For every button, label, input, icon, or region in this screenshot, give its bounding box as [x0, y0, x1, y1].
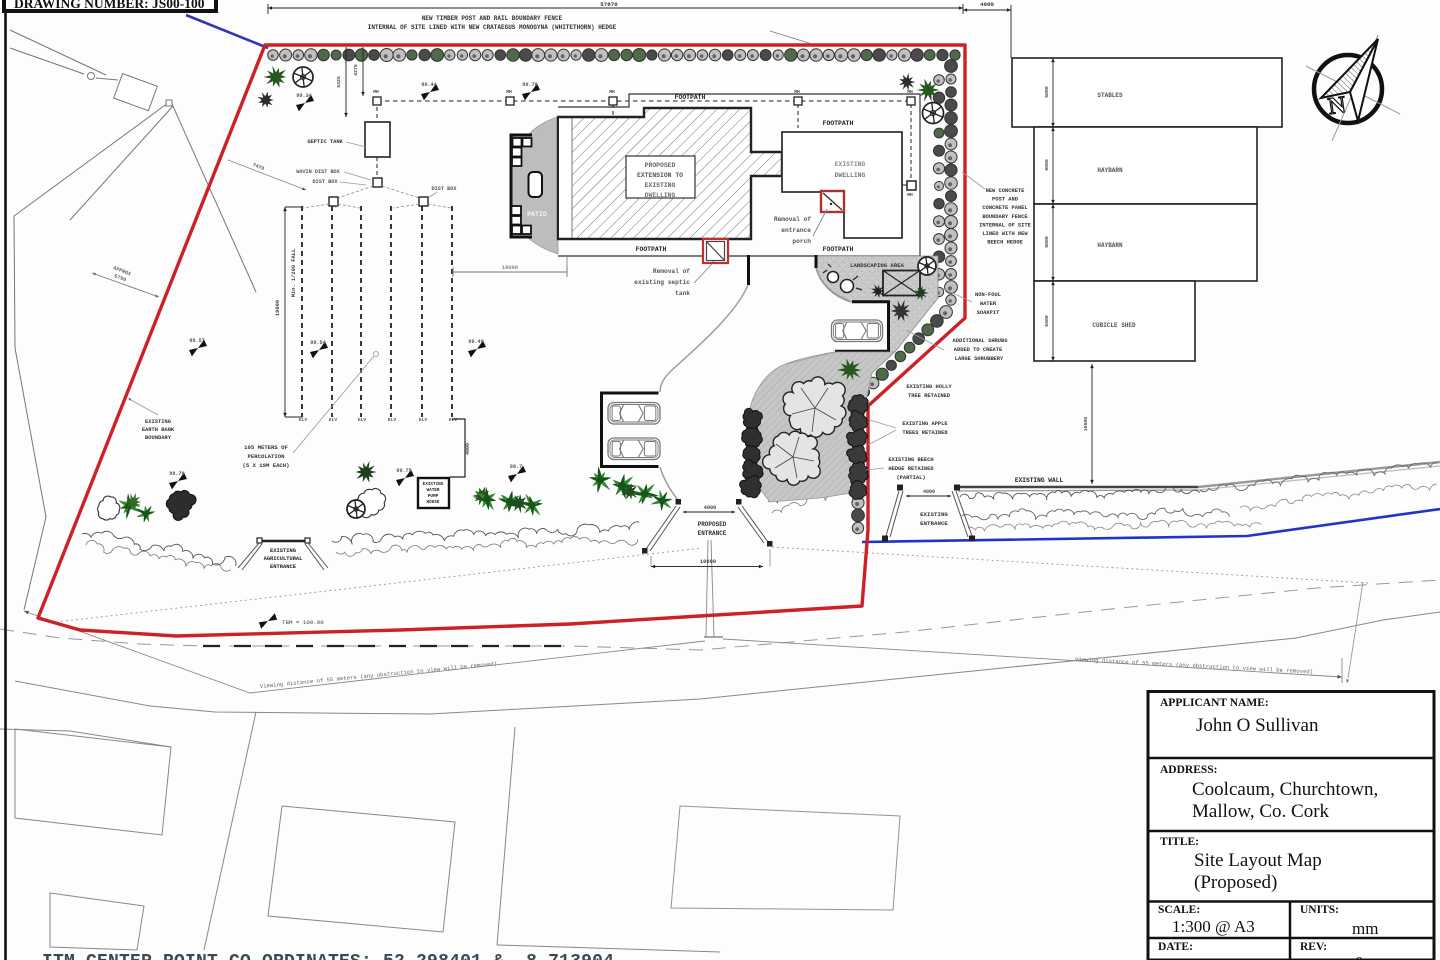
svg-text:EXISTING: EXISTING: [920, 511, 948, 518]
svg-text:99.78: 99.78: [169, 471, 185, 477]
svg-text:6500: 6500: [1044, 315, 1050, 327]
svg-text:PUMP: PUMP: [428, 494, 439, 499]
svg-text:LARGE SHRUBBERY: LARGE SHRUBBERY: [955, 356, 1004, 362]
svg-text:DWELLING: DWELLING: [835, 172, 866, 179]
svg-text:LANDSCAPING AREA: LANDSCAPING AREA: [850, 262, 904, 269]
svg-text:DWELLING: DWELLING: [645, 192, 676, 199]
svg-text:UNITS:: UNITS:: [1300, 904, 1339, 916]
svg-text:porch: porch: [792, 238, 811, 245]
svg-text:MH: MH: [907, 192, 913, 198]
svg-text:NEW CONCRETE: NEW CONCRETE: [986, 188, 1026, 194]
svg-text:STABLES: STABLES: [1097, 92, 1123, 99]
svg-text:mm: mm: [1352, 919, 1378, 938]
svg-text:EXISTING BEECH: EXISTING BEECH: [888, 457, 933, 463]
svg-text:HAYBARN: HAYBARN: [1097, 242, 1123, 249]
svg-text:APPLICANT NAME:: APPLICANT NAME:: [1160, 697, 1269, 709]
svg-text:PERCOLATION: PERCOLATION: [248, 453, 285, 460]
svg-text:DIST BOX: DIST BOX: [432, 186, 458, 192]
svg-text:DRAWING NUMBER: JS00-100: DRAWING NUMBER: JS00-100: [14, 0, 205, 11]
svg-text:PROPOSED: PROPOSED: [645, 162, 676, 169]
svg-text:0: 0: [1355, 953, 1364, 960]
svg-text:BEECH HEDGE: BEECH HEDGE: [987, 240, 1023, 246]
svg-text:POST AND: POST AND: [992, 197, 1019, 203]
svg-text:NON-FOUL: NON-FOUL: [975, 292, 1001, 298]
svg-text:HAYBARN: HAYBARN: [1097, 167, 1123, 174]
svg-text:WATER: WATER: [980, 301, 997, 307]
svg-text:AGRICULTURAL: AGRICULTURAL: [264, 556, 303, 562]
svg-text:existing septic: existing septic: [634, 279, 690, 286]
svg-text:EARTH BANK: EARTH BANK: [142, 427, 175, 433]
svg-text:HEDGE RETAINED: HEDGE RETAINED: [888, 466, 934, 472]
svg-text:(Proposed): (Proposed): [1194, 872, 1277, 893]
svg-text:99.75: 99.75: [396, 468, 412, 474]
svg-text:EXISTING: EXISTING: [835, 161, 866, 168]
svg-text:9000: 9000: [1044, 236, 1050, 248]
svg-text:ENTRANCE: ENTRANCE: [920, 520, 948, 527]
svg-text:ELV: ELV: [419, 417, 428, 423]
svg-text:tank: tank: [675, 290, 690, 297]
svg-text:MH: MH: [506, 89, 512, 95]
svg-text:99.78: 99.78: [522, 82, 538, 88]
svg-text:99.54: 99.54: [310, 340, 326, 346]
svg-text:(5 X 19M EACH): (5 X 19M EACH): [243, 462, 290, 469]
svg-text:Removal of: Removal of: [774, 216, 811, 223]
svg-text:ELV: ELV: [358, 417, 367, 423]
svg-text:99.34: 99.34: [296, 93, 312, 99]
svg-text:99.49: 99.49: [468, 339, 484, 345]
svg-text:ENTRANCE: ENTRANCE: [270, 564, 297, 570]
svg-text:PROPOSED: PROPOSED: [698, 521, 727, 528]
svg-text:ELV: ELV: [329, 417, 338, 423]
svg-text:5000: 5000: [1044, 86, 1050, 98]
svg-text:5325: 5325: [336, 76, 342, 88]
svg-text:99.57: 99.57: [189, 338, 205, 344]
svg-text:WAVIN DIST BOX: WAVIN DIST BOX: [296, 169, 340, 175]
svg-text:EXTENSION TO: EXTENSION TO: [637, 172, 683, 179]
svg-text:CONCRETE PANEL: CONCRETE PANEL: [982, 205, 1027, 211]
svg-text:10000: 10000: [502, 265, 518, 271]
svg-text:10000: 10000: [700, 559, 716, 565]
svg-text:4000: 4000: [980, 1, 994, 8]
svg-text:TREE RETAINED: TREE RETAINED: [908, 393, 951, 399]
svg-text:John O Sullivan: John O Sullivan: [1196, 715, 1319, 736]
svg-text:10500: 10500: [1083, 417, 1089, 432]
svg-text:MH: MH: [373, 89, 379, 95]
svg-text:4000: 4000: [923, 489, 935, 495]
svg-text:EXISTING HOLLY: EXISTING HOLLY: [906, 384, 952, 390]
svg-text:Mallow, Co. Cork: Mallow, Co. Cork: [1192, 801, 1330, 822]
svg-text:FOOTPATH: FOOTPATH: [823, 120, 854, 127]
svg-text:SEPTIC TANK: SEPTIC TANK: [307, 139, 343, 145]
svg-text:ADDRESS:: ADDRESS:: [1160, 764, 1218, 776]
svg-text:FOOTPATH: FOOTPATH: [675, 94, 706, 101]
svg-text:4000: 4000: [465, 443, 471, 455]
svg-text:19000: 19000: [275, 300, 281, 316]
svg-text:NEW TIMBER POST AND RAIL BOUND: NEW TIMBER POST AND RAIL BOUNDARY FENCE: [422, 15, 563, 22]
svg-text:TITLE:: TITLE:: [1160, 836, 1199, 848]
svg-text:ELV: ELV: [449, 417, 458, 423]
svg-text:9000: 9000: [1044, 159, 1050, 171]
svg-text:57870: 57870: [600, 1, 618, 8]
svg-text:WATER: WATER: [427, 488, 440, 493]
svg-text:INTERNAL OF SITE LINED WITH NE: INTERNAL OF SITE LINED WITH NEW CRATAEGU…: [368, 24, 617, 31]
svg-text:SCALE:: SCALE:: [1158, 904, 1200, 916]
svg-text:REV:: REV:: [1300, 941, 1327, 953]
svg-text:HOUSE: HOUSE: [427, 500, 440, 505]
svg-text:FOOTPATH: FOOTPATH: [823, 246, 854, 253]
svg-text:ITM CENTER POINT CO-ORDINATES:: ITM CENTER POINT CO-ORDINATES: 52.298401…: [42, 952, 614, 960]
svg-text:99.7: 99.7: [510, 464, 522, 470]
svg-text:EXISTING: EXISTING: [423, 482, 444, 487]
svg-text:MH: MH: [609, 89, 615, 95]
svg-text:Removal of: Removal of: [653, 268, 690, 275]
svg-text:105 METERS OF: 105 METERS OF: [244, 444, 288, 451]
svg-text:LINED WITH NEW: LINED WITH NEW: [982, 231, 1028, 237]
svg-text:EXISTING WALL: EXISTING WALL: [1015, 477, 1064, 484]
svg-text:Min. 1/200 FALL: Min. 1/200 FALL: [291, 249, 297, 298]
svg-text:DIST BOX: DIST BOX: [313, 179, 339, 185]
svg-text:Site Layout Map: Site Layout Map: [1194, 850, 1322, 871]
svg-text:1:300 @ A3: 1:300 @ A3: [1172, 917, 1255, 936]
svg-text:99.44: 99.44: [421, 82, 437, 88]
svg-text:TBM = 100.00: TBM = 100.00: [282, 619, 324, 626]
svg-text:EXISTING APPLE: EXISTING APPLE: [902, 421, 948, 427]
svg-text:INTERNAL OF SITE: INTERNAL OF SITE: [979, 222, 1032, 228]
svg-text:Coolcaum, Churchtown,: Coolcaum, Churchtown,: [1192, 779, 1378, 800]
svg-text:BOUNDARY: BOUNDARY: [145, 435, 172, 441]
svg-text:PATIO: PATIO: [527, 211, 547, 218]
svg-text:EXISTING: EXISTING: [270, 548, 296, 554]
svg-text:EXISTING: EXISTING: [145, 419, 171, 425]
svg-text:DATE:: DATE:: [1158, 941, 1193, 953]
svg-text:TREES RETAINED: TREES RETAINED: [902, 430, 948, 436]
svg-text:ADDITIONAL SHRUBS: ADDITIONAL SHRUBS: [953, 338, 1009, 344]
svg-text:BOUNDARY FENCE: BOUNDARY FENCE: [982, 214, 1028, 220]
svg-text:(PARTIAL): (PARTIAL): [896, 475, 925, 481]
svg-text:ENTRANCE: ENTRANCE: [698, 530, 727, 537]
svg-text:CUBICLE SHED: CUBICLE SHED: [1092, 322, 1136, 329]
svg-text:ELV: ELV: [388, 417, 397, 423]
svg-text:EXISTING: EXISTING: [645, 182, 676, 189]
svg-text:FOOTPATH: FOOTPATH: [636, 246, 667, 253]
svg-text:SOAKPIT: SOAKPIT: [977, 310, 1000, 316]
svg-text:4275: 4275: [353, 64, 359, 76]
svg-text:4000: 4000: [704, 505, 716, 511]
svg-text:ELV: ELV: [299, 417, 308, 423]
svg-text:entrance: entrance: [781, 227, 811, 234]
svg-text:ADDED TO CREATE: ADDED TO CREATE: [954, 347, 1003, 353]
